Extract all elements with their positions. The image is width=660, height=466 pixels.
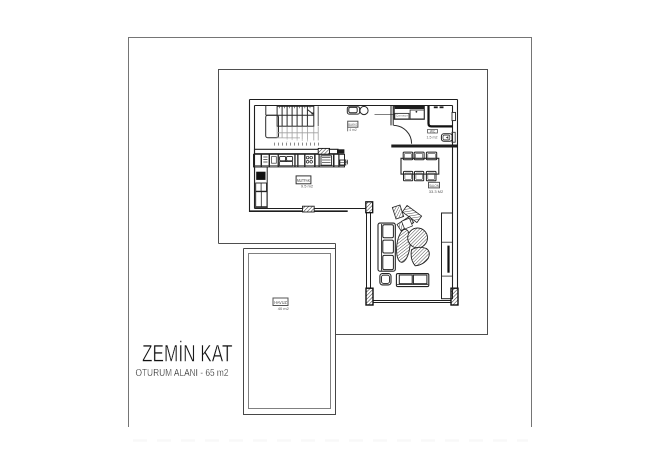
svg-text:HAVUZ: HAVUZ (274, 300, 287, 305)
svg-text:WC: WC (430, 130, 436, 134)
svg-text:33.3 M2: 33.3 M2 (429, 189, 444, 194)
svg-text:40 m2: 40 m2 (278, 306, 290, 311)
svg-text:OTURUM ALANI - 65 m2: OTURUM ALANI - 65 m2 (136, 367, 229, 379)
svg-text:9.5 m2: 9.5 m2 (301, 184, 314, 189)
svg-text:BANYO: BANYO (348, 123, 357, 127)
svg-text:1.5 m2: 1.5 m2 (427, 136, 438, 140)
svg-text:SALON: SALON (429, 183, 438, 188)
svg-text:MUTFAK: MUTFAK (297, 178, 310, 183)
svg-text:Çamaşır: Çamaşır (396, 113, 408, 117)
svg-text:4 m2: 4 m2 (349, 128, 357, 132)
svg-text:ZEMİN KAT: ZEMİN KAT (142, 341, 233, 368)
